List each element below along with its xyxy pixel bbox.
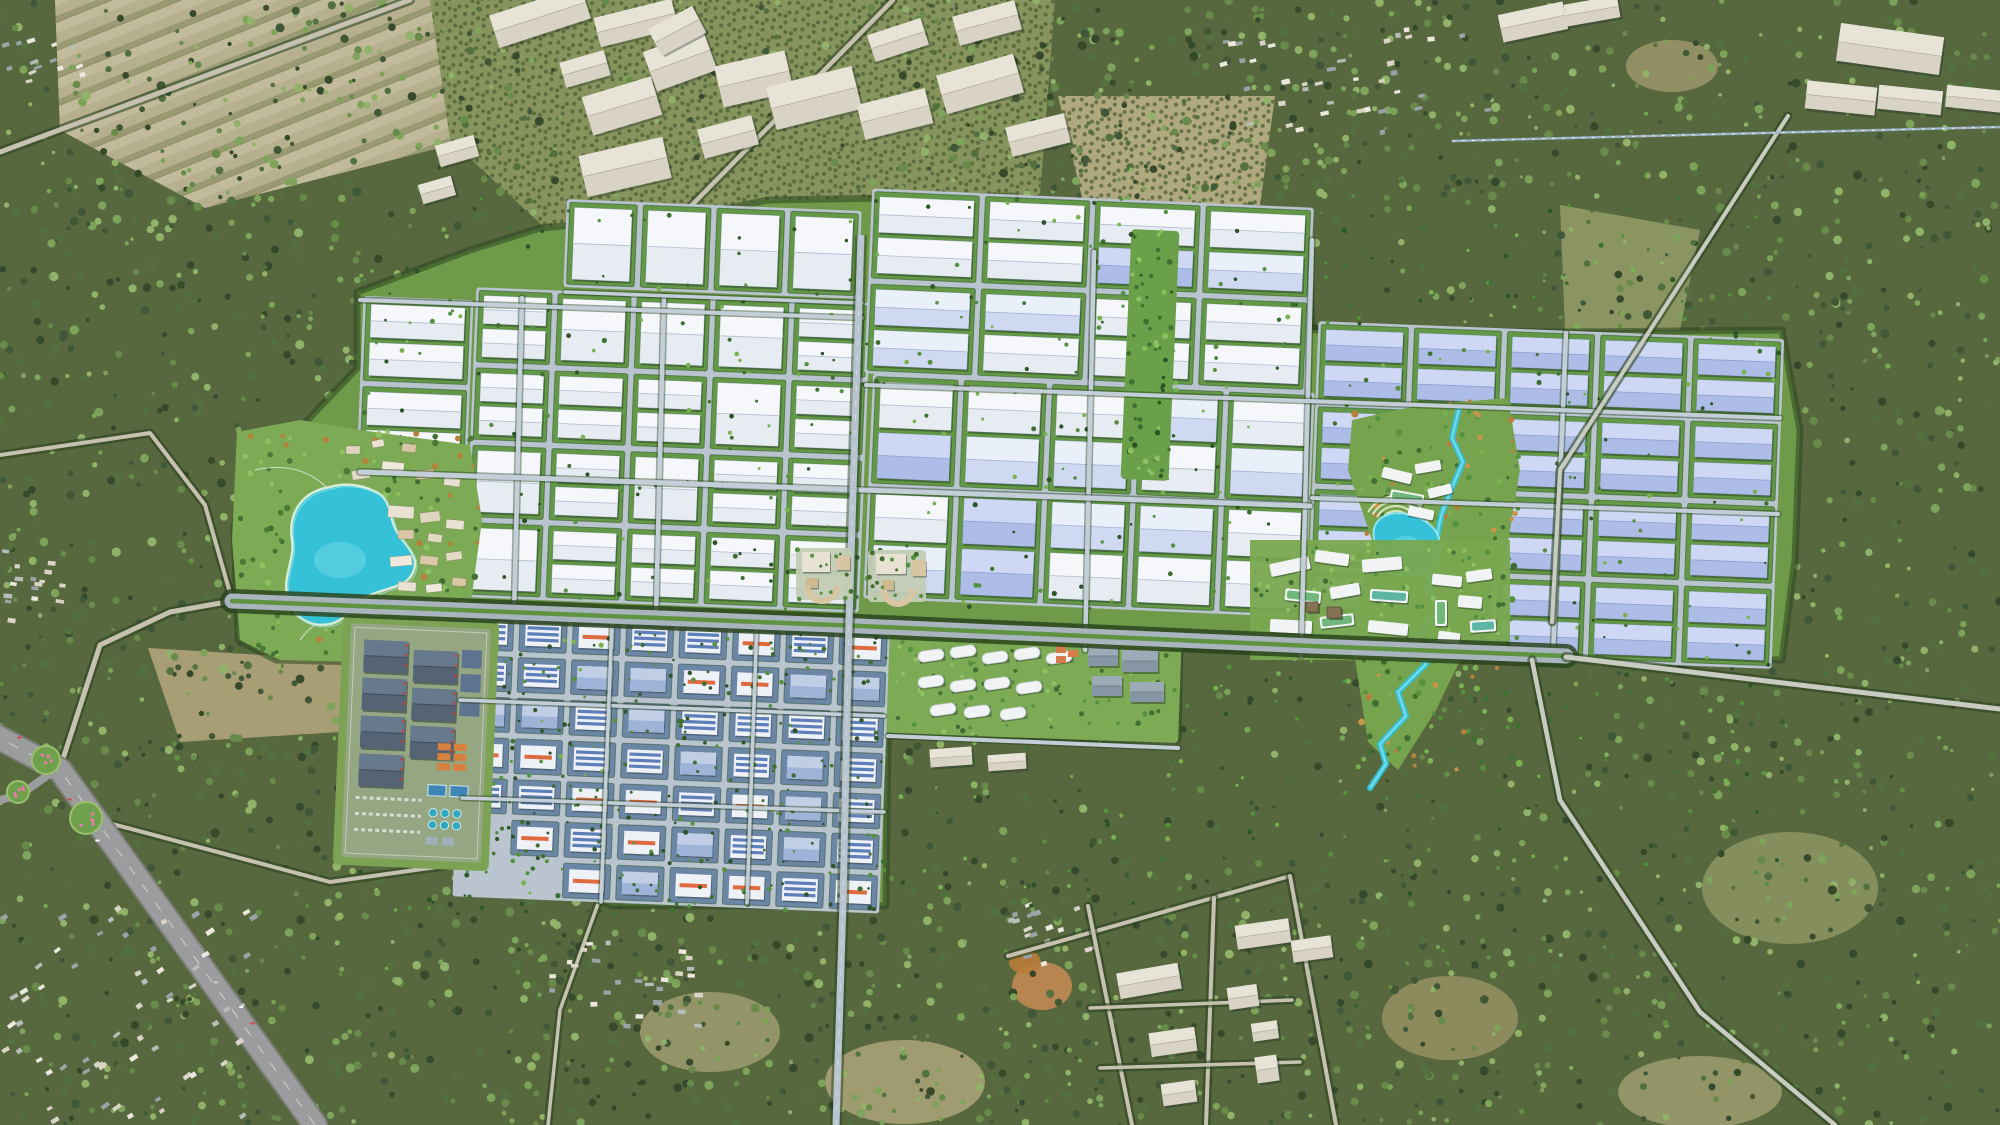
vehicle	[239, 1006, 243, 1008]
village-house	[606, 941, 611, 946]
small-factory-unit	[517, 826, 554, 852]
warehouse-roof	[878, 197, 976, 239]
warehouse-roof	[874, 494, 950, 545]
warehouse-roof	[554, 487, 620, 520]
warehouse-roof	[1510, 372, 1590, 408]
existing-factory	[929, 746, 974, 770]
warehouse-roof	[1595, 588, 1675, 624]
village-house	[15, 564, 20, 568]
warehouse-roof	[715, 382, 782, 448]
flower-bed	[80, 824, 83, 827]
warehouse-roof	[557, 409, 623, 442]
village-house	[694, 1024, 702, 1028]
village-house	[1379, 130, 1385, 135]
village-house	[635, 1014, 643, 1019]
small-factory-unit	[522, 704, 559, 730]
orange-structure	[437, 763, 450, 771]
town-building	[402, 443, 417, 452]
orange-structure	[438, 743, 451, 751]
warehouse-roof	[368, 342, 465, 381]
flower-bed	[91, 812, 94, 815]
warehouse-roof	[1693, 462, 1773, 498]
warehouse-roof	[793, 216, 855, 292]
flower-bed	[90, 818, 93, 821]
existing-factory	[1227, 984, 1262, 1013]
warehouse-roof	[987, 242, 1085, 284]
town-building	[426, 583, 443, 593]
village-house	[623, 1024, 630, 1029]
small-factory-unit	[675, 874, 712, 900]
warehouse-roof	[1687, 627, 1767, 663]
circular-tank	[453, 809, 462, 818]
campus-building	[1457, 595, 1483, 611]
gateway-building	[912, 560, 926, 576]
warehouse-roof	[1205, 304, 1303, 346]
village-house	[31, 596, 38, 601]
village-house	[31, 586, 38, 590]
warehouse-roof	[551, 564, 617, 597]
small-factory-unit	[788, 715, 825, 741]
small-factory-unit	[783, 837, 820, 863]
town-building	[398, 530, 414, 539]
village-house	[1427, 36, 1435, 41]
warehouse-roof	[552, 531, 618, 564]
warehouse-roof	[483, 296, 549, 329]
side-unit	[460, 674, 481, 693]
warehouse-roof	[636, 413, 702, 446]
town-building	[446, 519, 465, 530]
village-house	[678, 1010, 686, 1014]
existing-factory	[1254, 1054, 1282, 1086]
treatment-basin	[428, 785, 446, 797]
masterplan-map-canvas	[0, 0, 2000, 1125]
warehouse-roof	[1324, 365, 1404, 401]
small-factory-unit	[782, 878, 819, 904]
warehouse-roof	[1600, 458, 1680, 494]
warehouse-roof	[985, 294, 1083, 336]
warehouse-roof	[1232, 397, 1308, 448]
small-factory-unit	[787, 756, 824, 782]
warehouse-roof	[1418, 333, 1498, 369]
tower-building	[1327, 607, 1341, 618]
roundabout	[7, 781, 29, 803]
utility-building	[411, 688, 458, 724]
small-factory-unit	[525, 623, 562, 649]
warehouse-roof	[633, 457, 700, 523]
town-building	[388, 505, 415, 519]
small-factory-unit	[680, 752, 717, 778]
utility-building	[360, 716, 407, 752]
village-house	[48, 561, 56, 566]
village-house	[1278, 101, 1286, 107]
campus-building	[1370, 589, 1410, 605]
village-house	[15, 576, 24, 581]
small-factory-unit	[622, 871, 659, 897]
village-house	[567, 960, 573, 965]
warehouse-roof	[1204, 344, 1302, 386]
warehouse-roof	[965, 436, 1041, 487]
town-building	[452, 577, 467, 586]
warehouse-roof	[709, 571, 775, 604]
small-factory-unit	[523, 664, 560, 690]
flower-bed	[14, 795, 17, 798]
small-factory-unit-grid-south	[452, 612, 890, 914]
village-house	[645, 983, 654, 987]
village-house	[615, 979, 621, 984]
warehouse-roof	[1690, 544, 1770, 580]
vehicle	[67, 798, 71, 800]
village-house	[1302, 87, 1308, 91]
orange-structure	[437, 753, 450, 761]
village-house	[653, 1000, 662, 1005]
gray-factory	[1130, 682, 1166, 704]
vehicle	[17, 736, 21, 738]
village-house	[604, 990, 611, 994]
town-building	[428, 533, 443, 543]
small-factory-unit	[632, 627, 669, 653]
orange-roof-unit	[1068, 650, 1078, 657]
village-house	[590, 1002, 597, 1007]
vehicle	[214, 981, 218, 983]
flower-bed	[22, 788, 25, 791]
village-house	[687, 967, 694, 971]
warehouse-roof	[872, 330, 970, 372]
campus-building	[1435, 600, 1448, 628]
village-house	[571, 964, 579, 968]
circular-tank	[440, 821, 449, 830]
utility-building	[361, 678, 408, 714]
warehouse-roof	[1230, 448, 1306, 499]
warehouse-roof	[482, 329, 548, 362]
village-house	[59, 583, 66, 588]
warehouse-roof	[1688, 591, 1768, 627]
roundabout	[70, 802, 102, 834]
town-building	[346, 446, 360, 454]
warehouse-roof	[1697, 344, 1777, 380]
block-grid-nw-arm	[563, 199, 861, 299]
gray-factory	[1092, 676, 1124, 698]
village-house	[34, 582, 42, 587]
small-factory-unit	[685, 629, 722, 655]
orange-structure	[453, 764, 466, 772]
campus-building	[1470, 619, 1498, 634]
existing-factory	[1161, 1079, 1200, 1108]
warehouse-roof	[710, 537, 776, 570]
warehouse-roof	[1137, 556, 1213, 607]
small-factory-unit	[627, 749, 664, 775]
village-house	[688, 974, 695, 978]
warehouse-roof	[983, 335, 1081, 377]
warehouse-roof	[874, 289, 972, 331]
circular-tank	[429, 808, 438, 817]
small-factory-unit	[792, 634, 829, 660]
warehouse-roof	[631, 534, 697, 567]
flower-bed	[18, 788, 21, 791]
village-house	[580, 948, 587, 952]
village-house	[3, 593, 12, 598]
warehouse-roof	[712, 493, 778, 526]
village-house	[592, 958, 601, 963]
gateway-building	[802, 552, 830, 572]
warehouse-roof	[1696, 380, 1776, 416]
aerial-masterplan-rendering	[0, 0, 2000, 1125]
flower-bed	[44, 761, 47, 764]
warehouse-roof	[719, 213, 781, 289]
small-factory-unit	[520, 745, 557, 771]
village-house	[1404, 27, 1410, 32]
town-building	[390, 555, 413, 567]
circular-tank	[441, 809, 450, 818]
warehouse-roof	[1593, 623, 1673, 659]
southwest-utility-campus	[333, 615, 500, 872]
tower-building	[1306, 602, 1318, 612]
flower-bed	[46, 755, 49, 758]
existing-factory	[1251, 1020, 1282, 1044]
orange-structure	[453, 754, 466, 762]
warehouse-roof	[630, 567, 696, 600]
warehouse-roof	[559, 376, 625, 409]
orange-roof-unit	[1056, 656, 1066, 663]
warehouse-roof	[472, 528, 539, 594]
warehouse-roof	[1511, 337, 1591, 373]
village-house	[635, 979, 643, 983]
warehouse-roof	[1208, 252, 1306, 294]
utility-building	[413, 650, 460, 686]
orange-structure	[454, 744, 467, 752]
warehouse-roof	[1597, 541, 1677, 577]
utility-building	[358, 754, 405, 790]
utility-building	[363, 640, 410, 676]
warehouse-roof	[1417, 369, 1497, 405]
gateway-building	[836, 556, 850, 570]
village-house	[549, 974, 556, 978]
small-factory-unit	[623, 831, 660, 857]
village-house	[586, 942, 594, 945]
warehouse-roof	[876, 433, 952, 484]
warehouse-roof	[638, 379, 704, 412]
gray-factory	[1088, 646, 1120, 668]
gateway-building	[882, 580, 894, 590]
village-house	[1395, 33, 1401, 39]
small-factory-unit	[677, 833, 714, 859]
vehicle	[251, 1022, 255, 1024]
flower-bed	[50, 759, 53, 762]
village-house	[549, 988, 555, 992]
small-factory-unit	[630, 668, 667, 694]
existing-factory	[987, 753, 1028, 774]
warehouse-roof	[1325, 329, 1405, 365]
flower-bed	[41, 753, 44, 756]
warehouse-roof	[572, 207, 634, 283]
town-building	[420, 511, 441, 523]
warehouse-roof	[475, 450, 542, 516]
village-house	[694, 993, 703, 998]
warehouse-roof	[478, 406, 544, 439]
village-house	[656, 987, 663, 992]
gray-factory	[1122, 650, 1160, 674]
warehouse-roof	[876, 238, 974, 280]
vehicle	[95, 840, 99, 842]
circular-tank	[428, 820, 437, 829]
flower-bed	[91, 823, 94, 826]
village-house	[679, 949, 687, 954]
town-building	[398, 581, 417, 591]
village-house	[675, 971, 683, 976]
small-factory-unit	[682, 711, 719, 737]
warehouse-roof	[366, 392, 463, 431]
warehouse-roof	[480, 373, 546, 406]
warehouse-roof	[1139, 506, 1215, 557]
warehouse-roof	[989, 202, 1087, 244]
circular-tank	[452, 821, 461, 830]
small-factory-unit	[790, 674, 827, 700]
warehouse-roof	[1209, 211, 1307, 253]
town-building	[420, 555, 439, 566]
side-unit	[461, 650, 482, 669]
roundabout	[32, 746, 60, 774]
village-house	[685, 956, 692, 960]
village-house	[661, 977, 669, 982]
warehouse-roof	[1694, 426, 1774, 462]
warehouse-roof	[645, 210, 707, 286]
warehouse-roof	[1601, 423, 1681, 459]
vehicle	[241, 1004, 245, 1006]
